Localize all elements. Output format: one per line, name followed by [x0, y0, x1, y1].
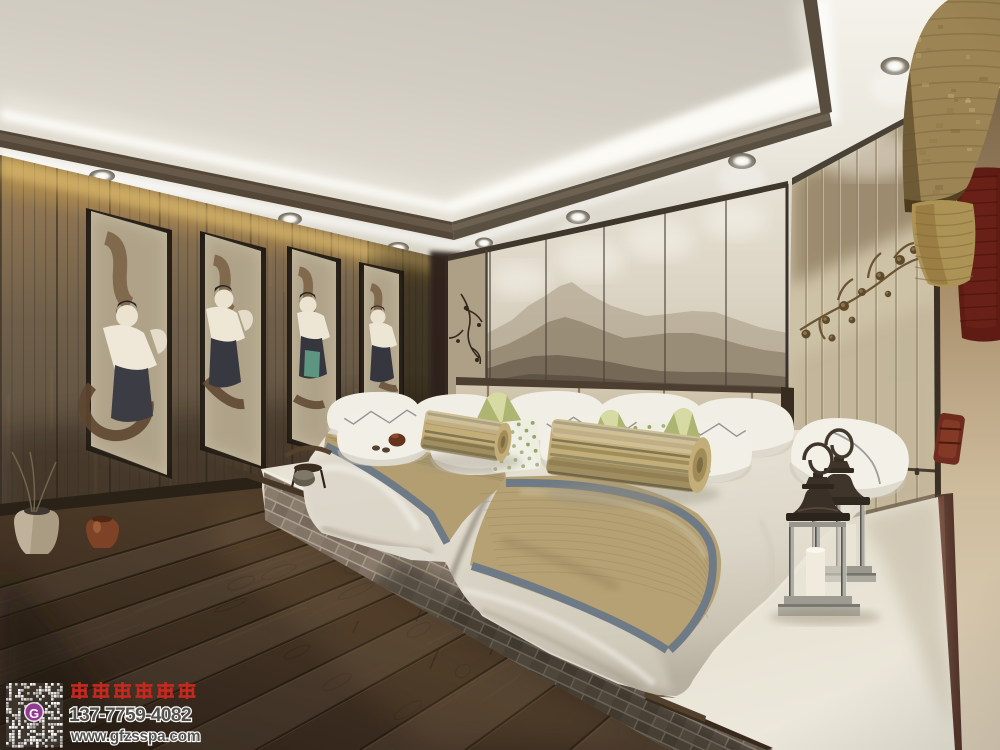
svg-text:137-7759-4082: 137-7759-4082 [69, 704, 192, 726]
svg-text:G: G [29, 706, 39, 721]
svg-text:www.gfzsspa.com: www.gfzsspa.com [70, 728, 200, 745]
